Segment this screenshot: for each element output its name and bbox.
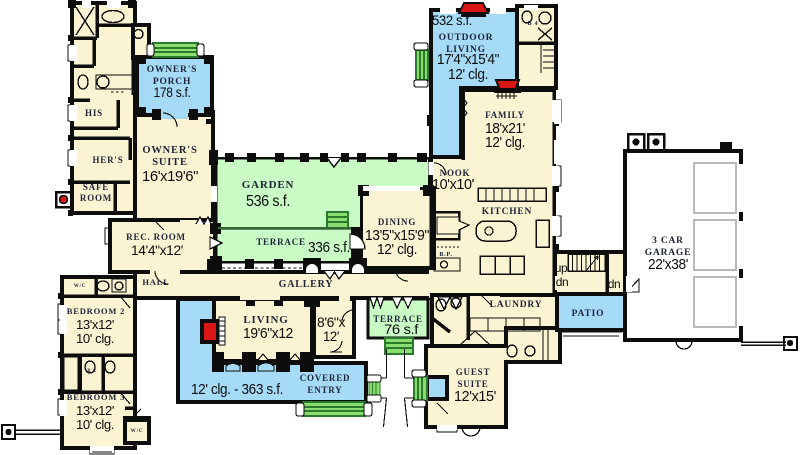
- svg-text:SUITE: SUITE: [152, 157, 188, 168]
- svg-text:10' clg.: 10' clg.: [76, 331, 114, 346]
- svg-text:ENTRY: ENTRY: [307, 385, 342, 395]
- svg-text:12': 12': [323, 328, 339, 344]
- svg-text:12' clg. - 363 s.f.: 12' clg. - 363 s.f.: [191, 381, 283, 398]
- svg-text:dn: dn: [556, 275, 569, 289]
- svg-text:14'4"x12': 14'4"x12': [131, 242, 183, 258]
- svg-text:W/C: W/C: [74, 284, 86, 289]
- svg-text:76 s.f: 76 s.f: [384, 321, 419, 337]
- svg-text:16'x19'6": 16'x19'6": [142, 168, 198, 185]
- svg-text:178 s.f.: 178 s.f.: [154, 84, 191, 100]
- svg-text:TERRACE: TERRACE: [256, 237, 306, 247]
- svg-text:BEDROOM 2: BEDROOM 2: [67, 306, 125, 316]
- svg-text:12'x15': 12'x15': [454, 388, 497, 405]
- svg-text:536 s.f.: 536 s.f.: [246, 193, 290, 210]
- svg-text:12' clg.: 12' clg.: [448, 66, 488, 83]
- svg-text:W/C: W/C: [131, 429, 143, 434]
- svg-text:12' clg.: 12' clg.: [485, 134, 525, 151]
- svg-text:19'6"x12: 19'6"x12: [243, 325, 293, 342]
- svg-text:PATIO: PATIO: [572, 309, 605, 319]
- svg-text:532 s.f.: 532 s.f.: [432, 12, 472, 28]
- svg-text:up: up: [555, 261, 568, 275]
- svg-text:GUEST: GUEST: [456, 367, 491, 377]
- svg-text:10'x10': 10'x10': [432, 176, 475, 193]
- svg-text:13'x12': 13'x12': [76, 403, 114, 418]
- svg-text:OWNER'S: OWNER'S: [147, 65, 197, 75]
- svg-text:B 2: B 2: [87, 369, 97, 374]
- svg-text:12' clg.: 12' clg.: [377, 241, 417, 258]
- svg-text:B.P.: B.P.: [439, 252, 452, 258]
- svg-text:FAMILY: FAMILY: [485, 110, 525, 120]
- svg-text:13'x12': 13'x12': [76, 317, 114, 332]
- svg-text:HIS: HIS: [85, 108, 103, 118]
- svg-text:LAUNDRY: LAUNDRY: [490, 300, 543, 310]
- svg-text:dn: dn: [608, 277, 621, 291]
- svg-text:B 4: B 4: [528, 21, 539, 27]
- svg-text:OWNER'S: OWNER'S: [142, 145, 197, 156]
- svg-text:BEDROOM 3: BEDROOM 3: [67, 392, 125, 402]
- svg-text:3 CAR: 3 CAR: [652, 236, 684, 246]
- svg-text:SAFE: SAFE: [83, 182, 109, 192]
- svg-text:HER'S: HER'S: [92, 155, 123, 165]
- svg-text:KITCHEN: KITCHEN: [482, 207, 532, 217]
- svg-text:HALL: HALL: [142, 277, 169, 287]
- svg-text:REC. ROOM: REC. ROOM: [126, 232, 186, 242]
- svg-text:OUTDOOR: OUTDOOR: [439, 33, 494, 43]
- svg-text:GALLERY: GALLERY: [279, 279, 334, 290]
- svg-text:DINING: DINING: [378, 217, 416, 227]
- svg-text:ROOM: ROOM: [80, 193, 112, 203]
- svg-text:22'x38': 22'x38': [648, 256, 688, 273]
- svg-text:COVERED: COVERED: [300, 373, 351, 383]
- svg-text:10' clg.: 10' clg.: [76, 417, 114, 432]
- svg-text:GARDEN: GARDEN: [242, 179, 294, 191]
- svg-text:336 s.f.: 336 s.f.: [308, 239, 350, 256]
